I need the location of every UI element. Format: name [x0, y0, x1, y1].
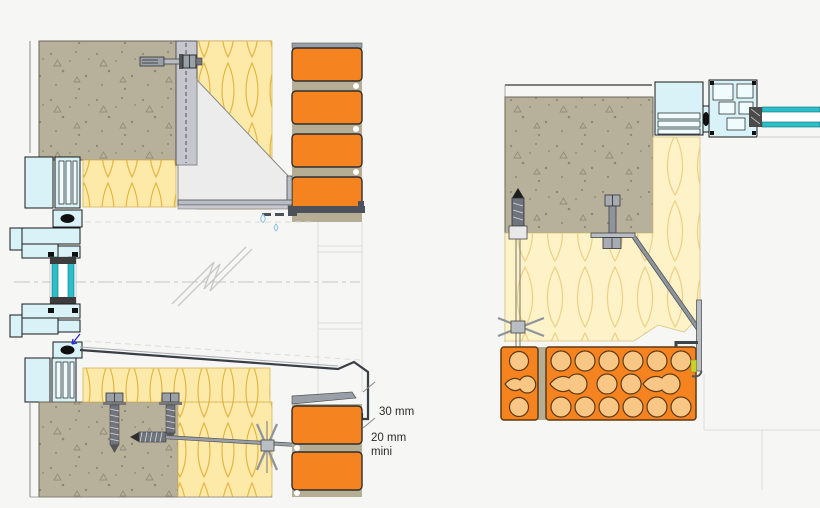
gasket [710, 131, 714, 135]
glazing-bead [58, 320, 80, 332]
concrete-wall [505, 97, 653, 233]
ghost-outline [704, 374, 820, 490]
sash-rail [22, 228, 80, 244]
joint-dash [288, 213, 297, 216]
concrete-sill [39, 402, 178, 497]
brick-hole [575, 351, 595, 371]
profile-web [658, 121, 700, 127]
double-glazing-unit [749, 107, 820, 127]
brick-hole [510, 352, 529, 371]
brick-hole [623, 397, 643, 417]
glass-pane [68, 257, 74, 304]
frame-extension-profile [25, 157, 53, 208]
brick-hole [621, 374, 641, 394]
dimension-20mm-mini: 20 mm mini [371, 432, 406, 458]
window-frame-assembly [10, 157, 82, 402]
brick-hole [599, 351, 619, 371]
vertical-profile [697, 300, 702, 371]
mortar-joint [538, 347, 546, 420]
joint-notch [353, 169, 359, 175]
glazing-spacer [50, 257, 76, 264]
facing-brick-column [292, 43, 362, 222]
brick [292, 91, 362, 124]
perforated-brick-course [501, 347, 696, 420]
profile-web [73, 161, 77, 204]
gasket [48, 252, 54, 257]
glazing-spacer [50, 297, 76, 304]
gasket [61, 346, 75, 355]
brick [292, 452, 362, 490]
dimension-30mm: 30 mm [363, 382, 414, 428]
glass-pane [762, 122, 820, 127]
joint-dash [275, 213, 284, 216]
profile-chamber [737, 84, 753, 98]
brick [292, 177, 362, 210]
hardware-profile [10, 315, 22, 337]
right-horizontal-section [498, 80, 820, 490]
glazing-spacer [749, 107, 762, 127]
joint-notch [294, 490, 300, 496]
glass-pane [762, 107, 820, 112]
brick [292, 406, 362, 444]
insulation-under-slab [83, 160, 176, 207]
joint-notch [353, 126, 359, 132]
window-frame-assembly [655, 80, 820, 137]
brick-hole [551, 351, 571, 371]
joint-notch [353, 83, 359, 89]
gasket [710, 81, 714, 85]
brick-hole [671, 351, 691, 371]
gasket [752, 131, 756, 135]
brick-hole [671, 397, 691, 417]
profile-chamber [713, 84, 733, 100]
profile-web [56, 362, 61, 398]
gasket [48, 308, 54, 313]
profile-web [658, 113, 700, 119]
gasket [703, 112, 709, 126]
dimension-label-gap-value: 20 mm [371, 432, 406, 444]
construction-detail-drawing: 30 mm 20 mm mini [0, 0, 820, 508]
steel-strip [292, 43, 362, 48]
hardware-profile [10, 228, 22, 250]
sash-rail [22, 318, 58, 334]
profile-web [59, 161, 64, 204]
brick-hole [599, 397, 619, 417]
profile-web [63, 362, 68, 398]
brick-hole [647, 397, 667, 417]
gasket [752, 81, 756, 85]
sill-detail: 30 mm 20 mm mini [30, 341, 414, 497]
brick-cap [292, 392, 356, 404]
brick [292, 134, 362, 167]
glass-pane [52, 257, 58, 304]
facing-brick-column [292, 392, 362, 497]
brick-hole [647, 351, 667, 371]
joint-notch [294, 445, 300, 451]
brick-hole [551, 397, 571, 417]
profile-chamber [719, 102, 735, 114]
brick-hole [597, 374, 617, 394]
profile-web [66, 161, 71, 204]
gasket [61, 214, 75, 223]
profile-web [70, 362, 74, 398]
dimension-label-drip-height: 30 mm [379, 406, 414, 418]
gasket [72, 308, 78, 313]
profile-web [658, 129, 700, 134]
bracket-plate [591, 233, 635, 238]
sealant [691, 360, 697, 372]
gasket [72, 252, 78, 257]
brick-hole [575, 397, 595, 417]
technical-drawing-canvas: 30 mm 20 mm mini [0, 0, 820, 508]
frame-extension-profile [25, 358, 50, 402]
brick-hole [623, 351, 643, 371]
brick-hole [510, 398, 529, 417]
insulation-block [178, 402, 272, 497]
left-vertical-section: 30 mm 20 mm mini [10, 41, 414, 497]
double-glazing-unit [50, 257, 76, 304]
brick [292, 48, 362, 81]
water-drop-icon [274, 224, 278, 231]
dimension-label-gap-mini: mini [371, 446, 392, 458]
break-line-symbol [172, 247, 252, 306]
profile-chamber [727, 118, 745, 130]
